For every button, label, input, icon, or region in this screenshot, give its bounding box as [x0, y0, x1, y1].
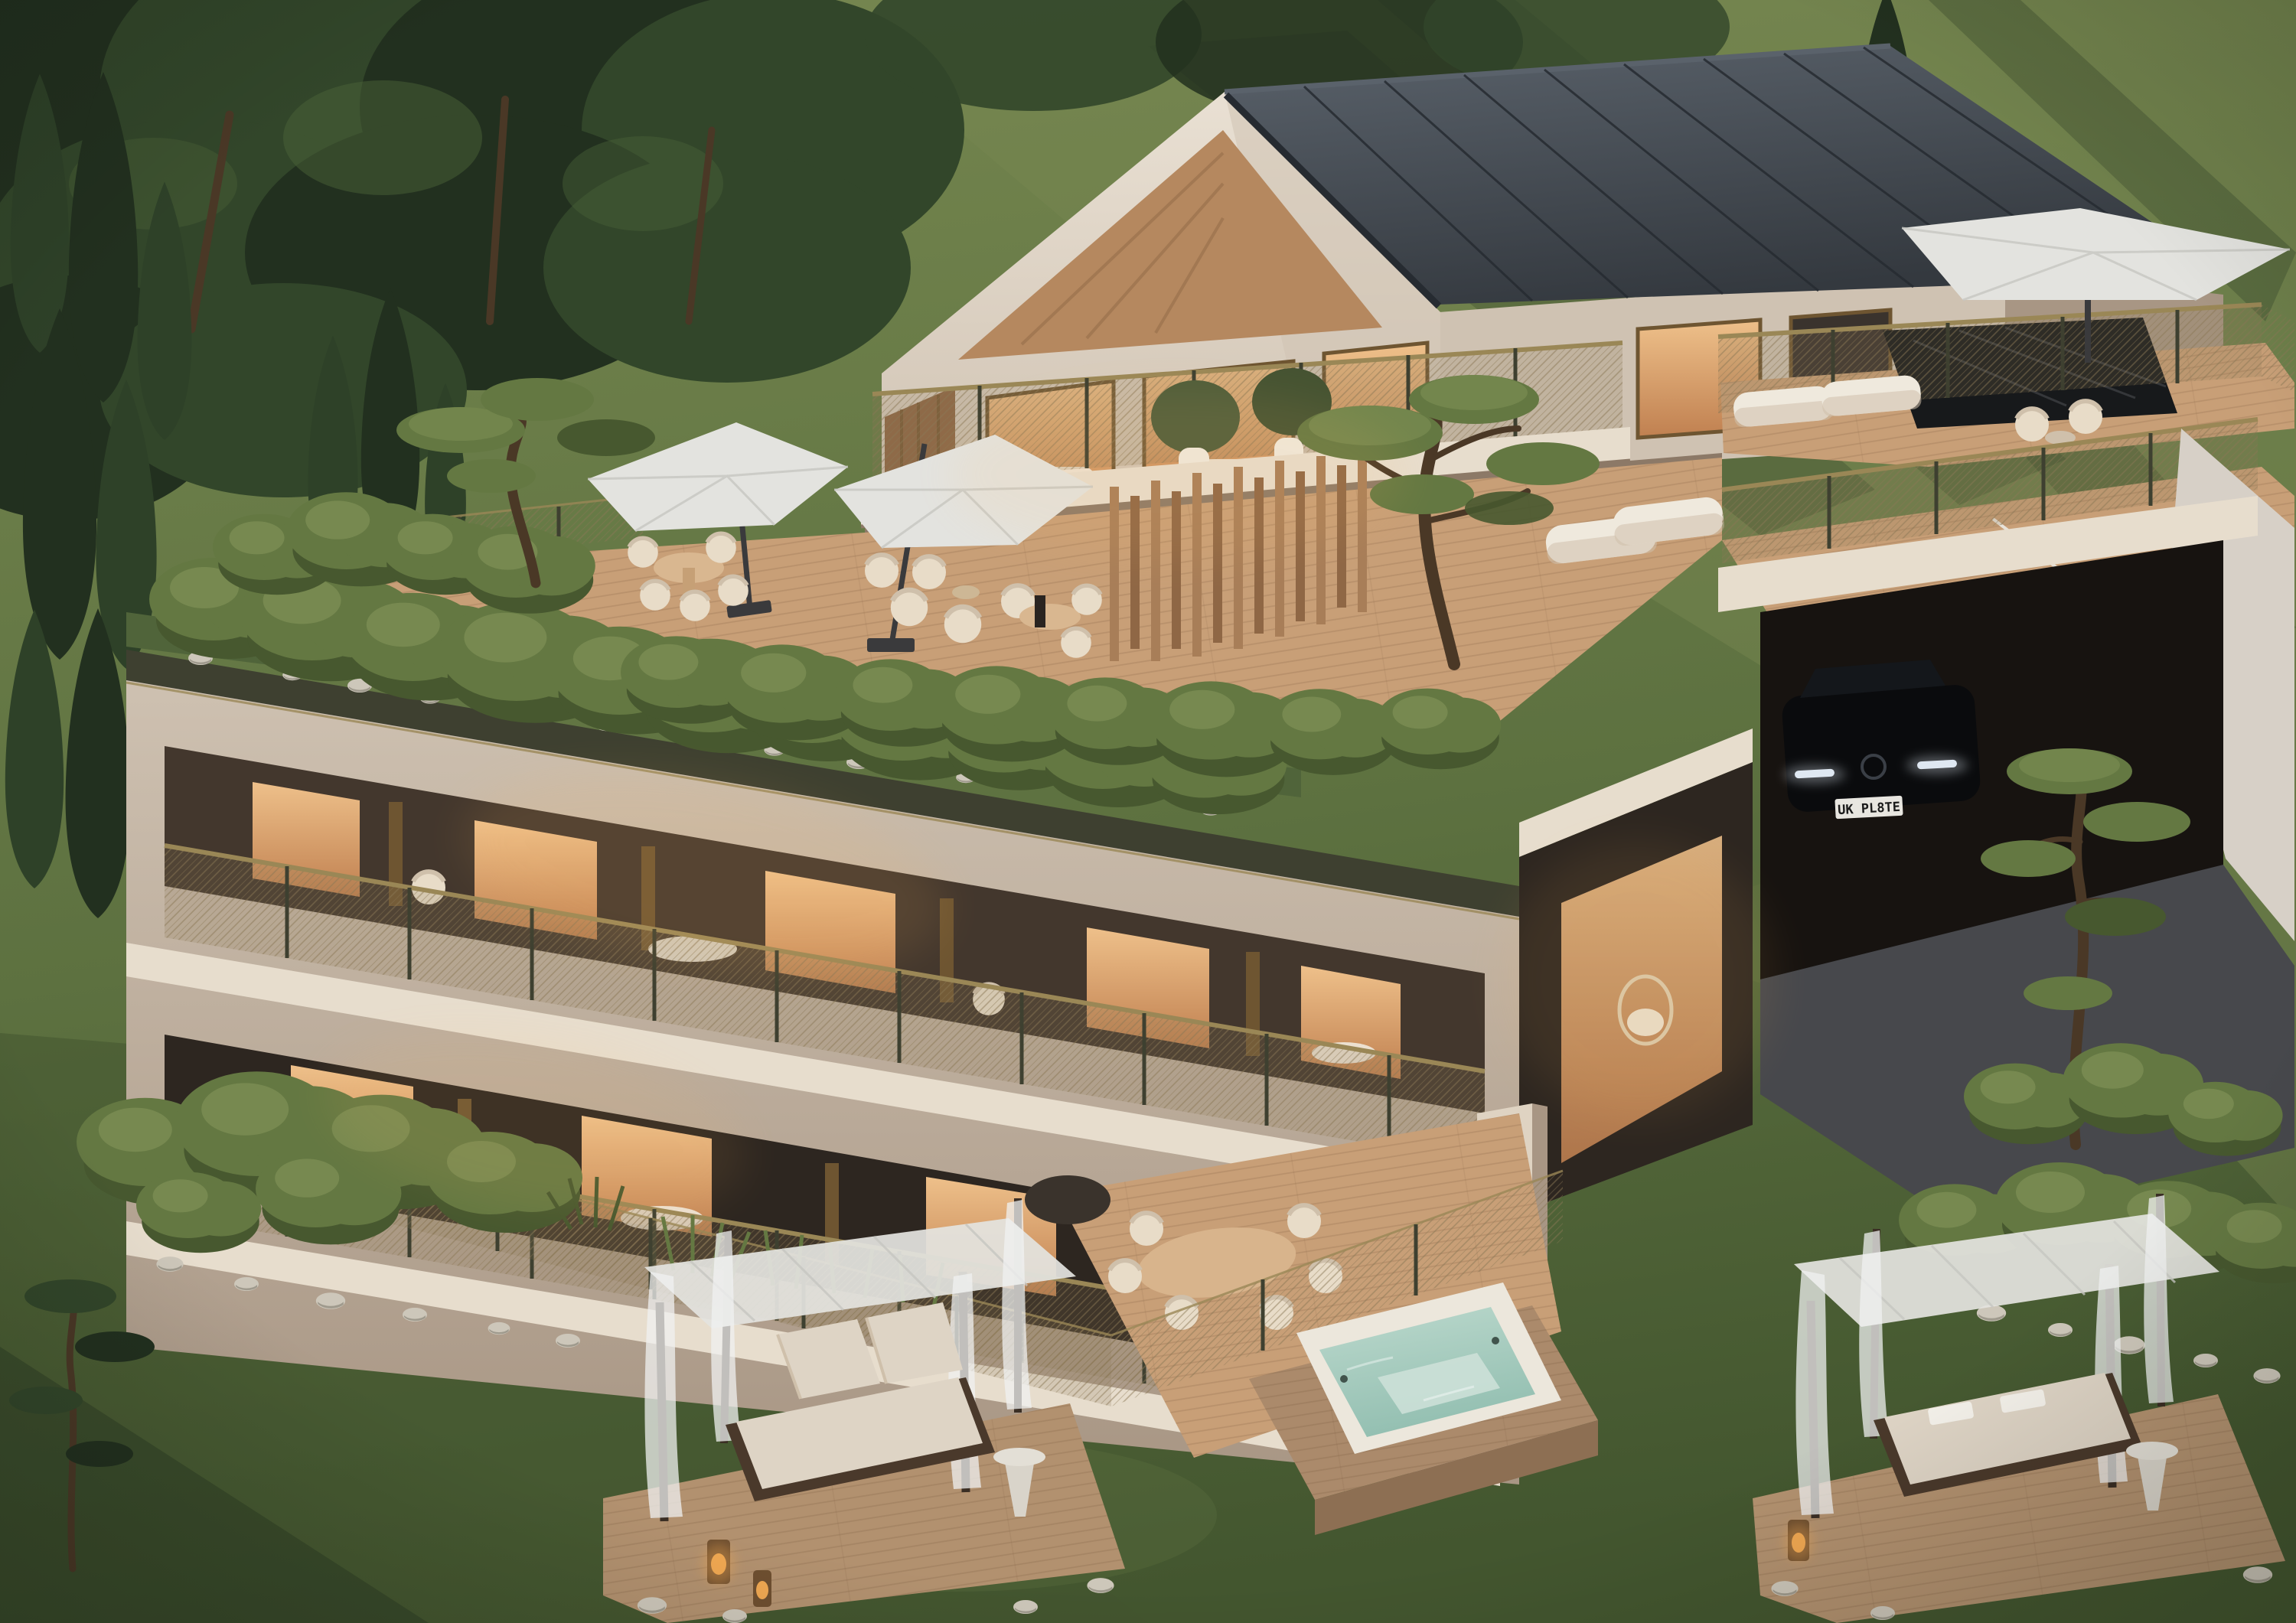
villa-render: UK PL8TE: [0, 0, 2296, 1623]
render-viewport: UK PL8TE: [0, 0, 2296, 1623]
vignette: [0, 0, 2296, 1623]
